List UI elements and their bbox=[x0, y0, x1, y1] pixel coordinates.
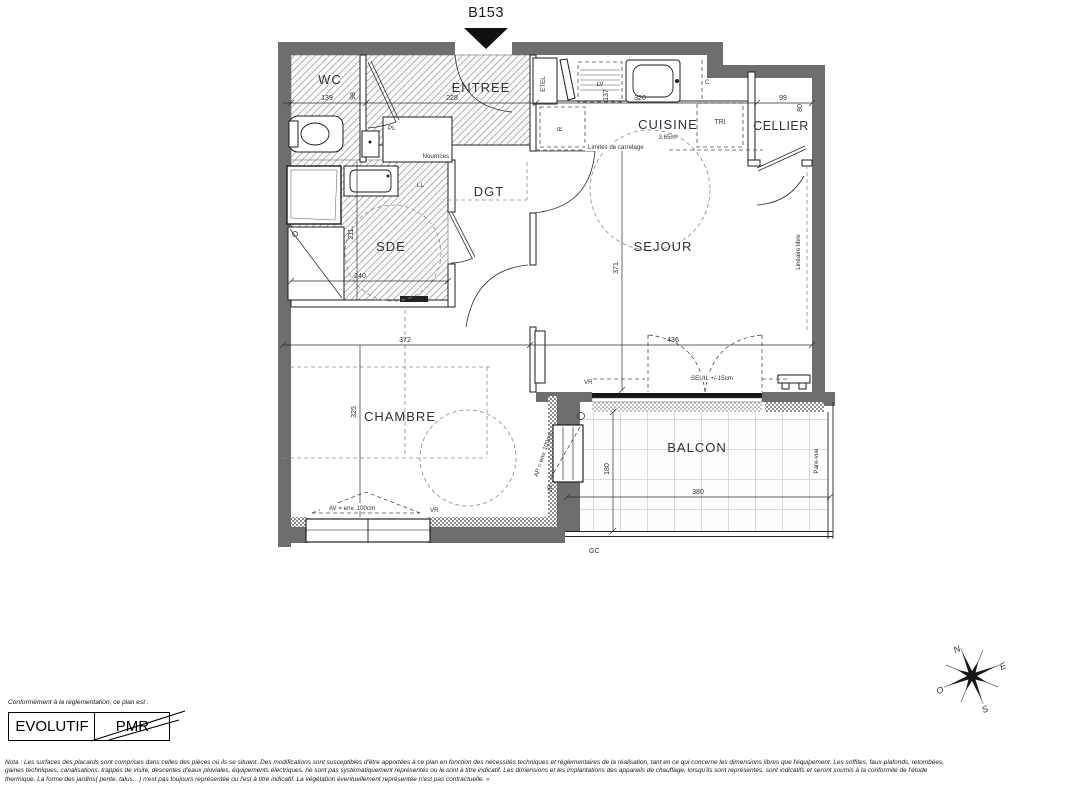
chambre-side-window bbox=[553, 425, 583, 482]
balcony-tiles bbox=[580, 412, 828, 531]
label-lineaire-libre: Linéaire libre bbox=[795, 234, 802, 270]
label-vr-side: VR bbox=[547, 484, 554, 493]
label-limites-carrelage: Limites de carrelage bbox=[588, 144, 644, 151]
label-pl: PL bbox=[388, 125, 396, 132]
dim-cuisine-width: 320 bbox=[634, 95, 646, 102]
legend-evolutif-box: EVOLUTIF bbox=[8, 712, 96, 741]
room-label-cuisine: CUISINE bbox=[638, 117, 698, 132]
dim-wc-width: 139 bbox=[321, 95, 333, 102]
dim-balcon-height: 180 bbox=[604, 463, 611, 475]
compass-rose: N E O S bbox=[933, 637, 1011, 715]
chambre-window bbox=[306, 519, 430, 542]
dim-cellier-width: 99 bbox=[779, 95, 787, 102]
room-label-wc: WC bbox=[318, 72, 342, 87]
room-label-sejour: SEJOUR bbox=[634, 239, 693, 254]
legend-intro: Conformément à la réglementation, ce pla… bbox=[8, 699, 170, 706]
floor-plan-svg: B153 bbox=[0, 0, 1077, 800]
label-gc: GC bbox=[589, 548, 600, 555]
label-vr-chambre: VR bbox=[430, 507, 439, 514]
compass-e: E bbox=[998, 660, 1008, 672]
room-label-sde: SDE bbox=[376, 239, 406, 254]
nota-text: Nota : Les surfaces des placards sont co… bbox=[5, 759, 1073, 784]
faucet-icon bbox=[675, 79, 679, 83]
legend-evolutif-label: EVOLUTIF bbox=[15, 718, 88, 735]
balcony-sliding-door bbox=[592, 393, 762, 402]
nota-line-3: thermique. La forme des jardins( pente, … bbox=[5, 776, 1073, 784]
dim-sejour-height: 371 bbox=[613, 262, 620, 274]
nota-line-1: Nota : Les surfaces des placards sont co… bbox=[5, 759, 1073, 767]
legend: Conformément à la réglementation, ce pla… bbox=[8, 699, 170, 741]
radiator bbox=[535, 331, 545, 383]
compass-n: N bbox=[952, 643, 962, 655]
dim-sejour-width: 436 bbox=[667, 337, 679, 344]
entrance-triangle-icon bbox=[464, 28, 508, 49]
dim-entree-width: 228 bbox=[446, 95, 458, 102]
room-label-balcon: BALCON bbox=[667, 440, 726, 455]
washer-column bbox=[287, 166, 341, 224]
label-nourrices: Nourrices bbox=[423, 153, 449, 160]
compass-s: S bbox=[980, 703, 989, 715]
compass-o: O bbox=[935, 684, 945, 696]
room-label-chambre: CHAMBRE bbox=[364, 409, 436, 424]
dim-left-width: 372 bbox=[399, 337, 411, 344]
nota-line-2: gaines techniques, canalisations, trappe… bbox=[5, 767, 1073, 775]
room-label-cellier: CELLIER bbox=[753, 119, 809, 133]
label-pare-vue: Pare-vue bbox=[813, 448, 820, 474]
pmr-strikethrough-icon bbox=[95, 713, 185, 740]
label-lv: LV bbox=[596, 81, 604, 88]
hand-basin bbox=[362, 131, 379, 157]
dim-wc-height: 98 bbox=[350, 92, 357, 100]
label-vr-sejour: VR bbox=[584, 379, 593, 386]
room-label-dgt: DGT bbox=[474, 184, 504, 199]
dim-sde-width: 240 bbox=[354, 273, 366, 280]
etel-door-leaf bbox=[560, 59, 575, 100]
dim-chambre-height: 325 bbox=[351, 406, 358, 418]
room-label-entree: ENTREE bbox=[452, 80, 511, 95]
label-c: C bbox=[705, 79, 710, 86]
label-r: R bbox=[557, 126, 564, 131]
dim-cellier-height: 80 bbox=[797, 104, 804, 112]
label-seuil: SEUIL +/-15cm bbox=[691, 375, 733, 382]
room-area-cuisine: 3.65m² bbox=[658, 134, 677, 141]
dim-balcon-width: 380 bbox=[692, 489, 704, 496]
label-ll: LL bbox=[417, 182, 424, 189]
dim-cuisine-height: 137 bbox=[603, 89, 610, 101]
label-av: AV = env. 100cm bbox=[329, 505, 375, 512]
towel-rail bbox=[400, 296, 428, 302]
floor-plan-page: B153 bbox=[0, 0, 1077, 800]
plan-title: B153 bbox=[468, 5, 504, 21]
label-tri: TRI bbox=[714, 119, 725, 126]
label-etel: ETEL bbox=[540, 76, 547, 92]
legend-pmr-box: PMR bbox=[94, 712, 170, 741]
bench bbox=[778, 375, 810, 389]
dim-sde-height: 211 bbox=[348, 228, 355, 239]
